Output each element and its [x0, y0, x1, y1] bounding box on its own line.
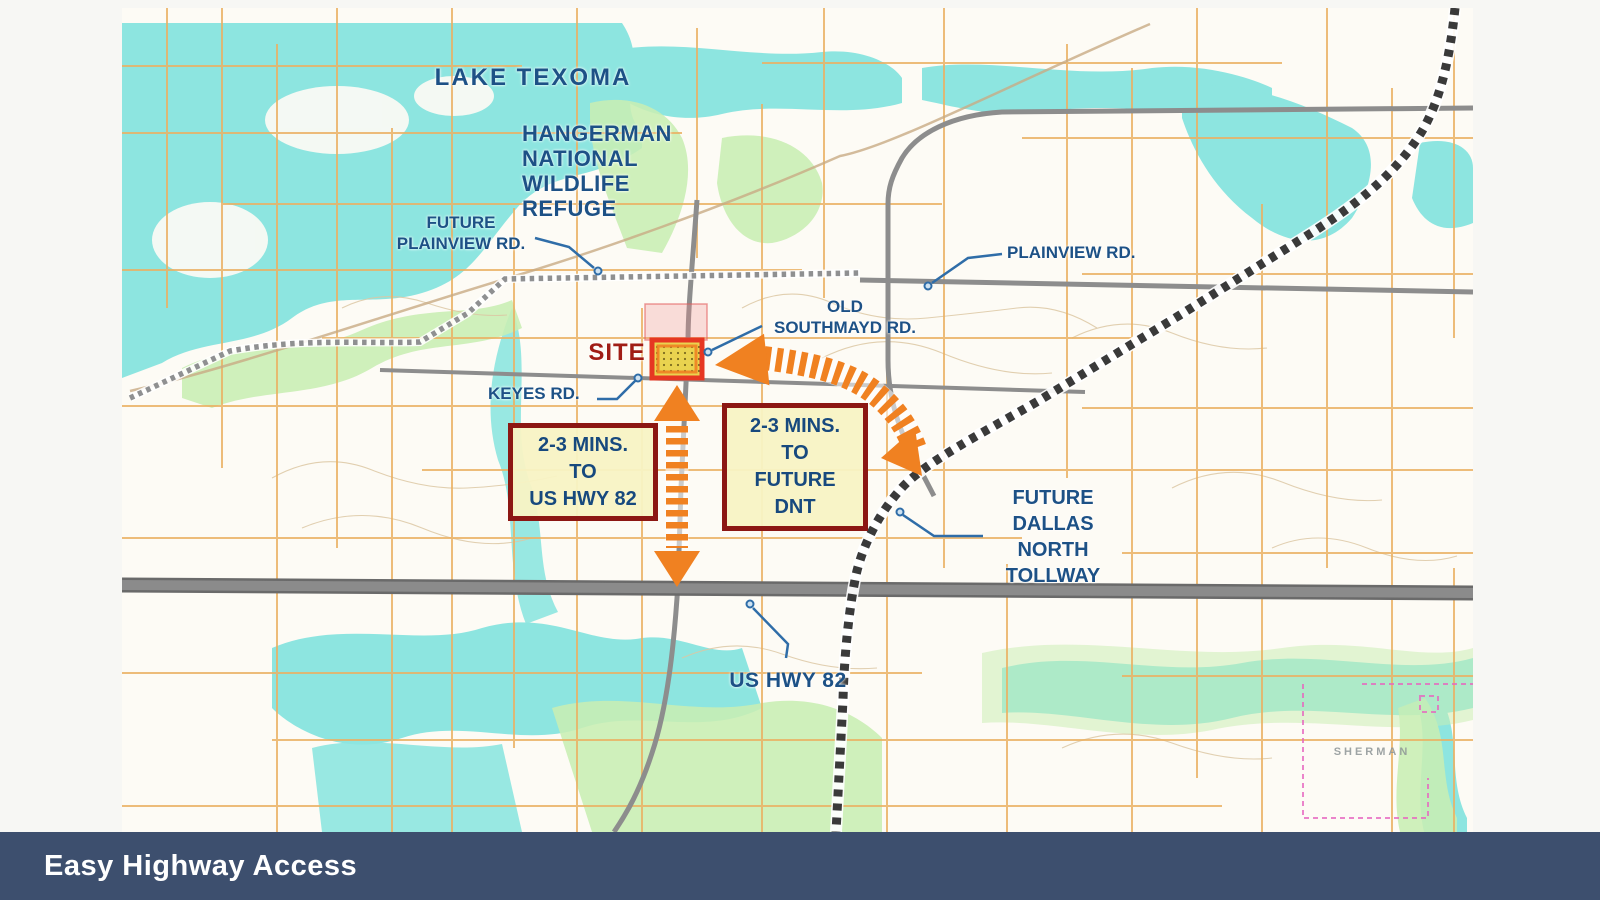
- refuge-line-4: REFUGE: [522, 196, 672, 221]
- us-hwy-82-label: US HWY 82: [729, 669, 846, 693]
- old-southmayd-label: OLD SOUTHMAYD RD.: [774, 296, 916, 338]
- refuge-line-2: NATIONAL: [522, 146, 672, 171]
- us-hwy-82-line: [122, 585, 1473, 593]
- slide: LAKE TEXOMA HANGERMAN NATIONAL WILDLIFE …: [0, 0, 1600, 900]
- keyes-label: KEYES RD.: [488, 384, 580, 404]
- callout-future-dnt: 2-3 MINS. TO FUTURE DNT: [722, 403, 868, 531]
- site-parcel-outline: [645, 304, 707, 340]
- plainview-label: PLAINVIEW RD.: [1007, 243, 1135, 263]
- caption-title: Easy Highway Access: [0, 850, 357, 883]
- sherman-label: SHERMAN: [1334, 746, 1411, 758]
- future-plainview-label: FUTURE PLAINVIEW RD.: [397, 212, 525, 254]
- callout-us-hwy-82: 2-3 MINS. TO US HWY 82: [508, 423, 658, 521]
- wildlife-refuge-label: HANGERMAN NATIONAL WILDLIFE REFUGE: [522, 121, 672, 221]
- refuge-line-3: WILDLIFE: [522, 171, 672, 196]
- lake-texoma-label: LAKE TEXOMA: [435, 64, 632, 92]
- site-marker: [652, 340, 702, 378]
- map-container: LAKE TEXOMA HANGERMAN NATIONAL WILDLIFE …: [122, 8, 1473, 832]
- caption-bar: Easy Highway Access: [0, 832, 1600, 900]
- refuge-line-1: HANGERMAN: [522, 121, 672, 146]
- site-label: SITE: [588, 339, 645, 367]
- future-dnt-label: FUTURE DALLAS NORTH TOLLWAY: [1006, 485, 1100, 589]
